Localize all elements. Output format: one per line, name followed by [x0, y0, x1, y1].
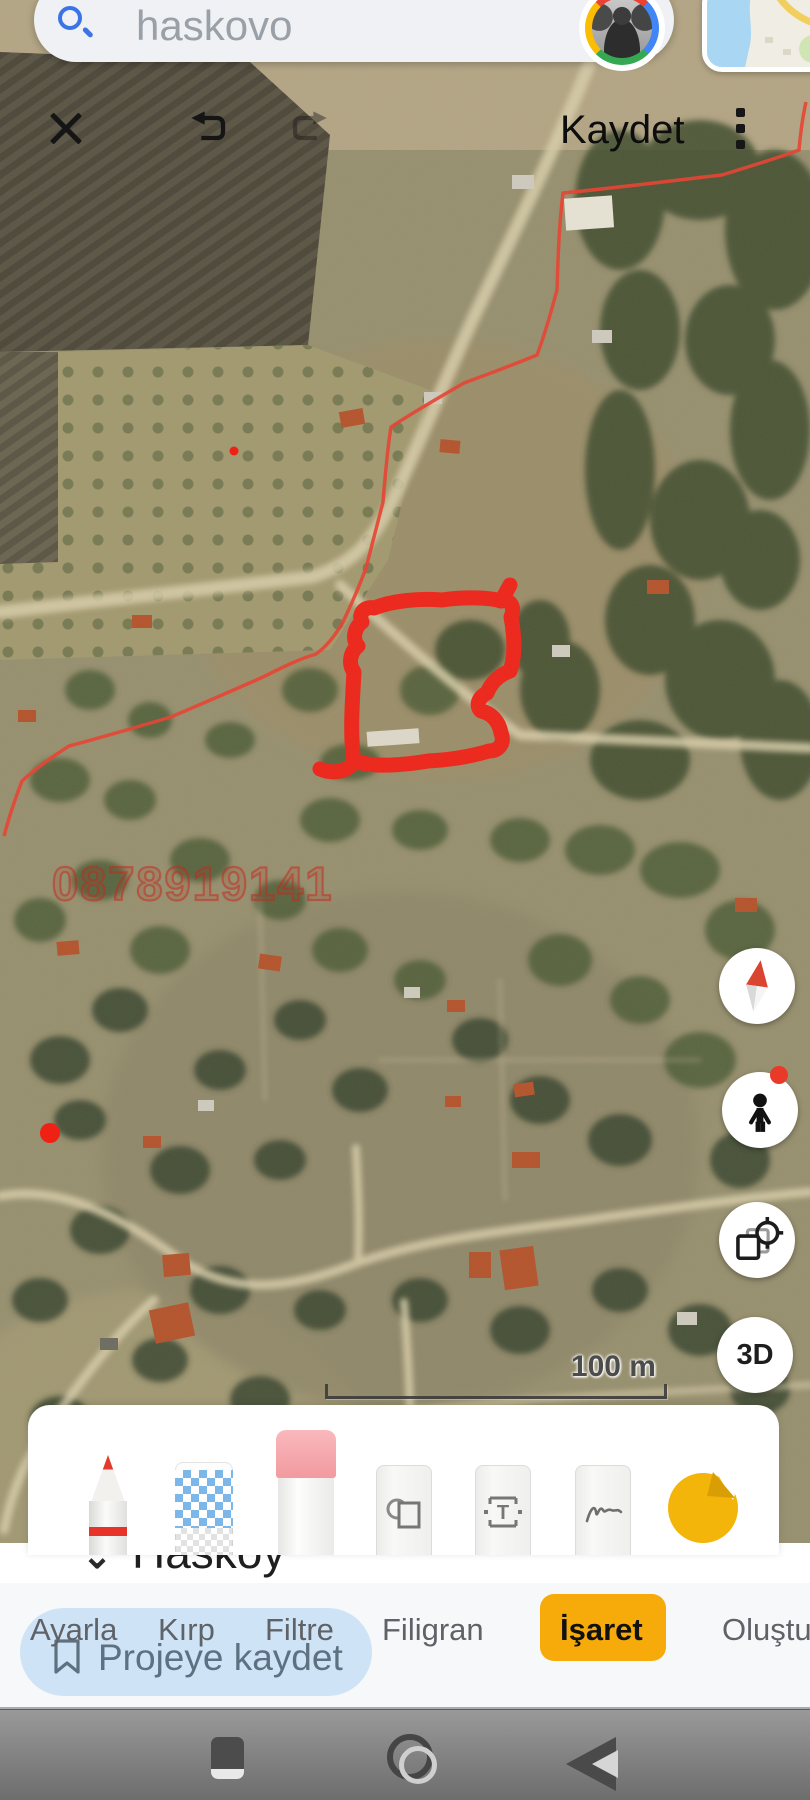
drawing-tools-palette: T — [28, 1405, 779, 1555]
home-icon-ring — [399, 1746, 437, 1784]
tab-kirp[interactable]: Kırp — [158, 1612, 215, 1648]
save-button[interactable]: Kaydet — [560, 108, 685, 153]
eraser-icon — [276, 1430, 336, 1478]
compass-button[interactable] — [719, 948, 795, 1024]
minimap-thumbnail[interactable] — [702, 0, 810, 72]
sticker-tool[interactable] — [667, 1466, 739, 1544]
text-icon: T — [482, 1492, 524, 1532]
signature-icon — [581, 1495, 625, 1529]
search-query[interactable]: haskovo — [136, 2, 292, 50]
mosaic-tool[interactable] — [175, 1462, 233, 1555]
pen-tip-icon — [85, 1455, 131, 1501]
eraser-tool[interactable] — [276, 1430, 336, 1555]
back-icon-highlight — [592, 1750, 618, 1778]
redo-icon — [290, 108, 330, 148]
rotate-view-icon — [730, 1215, 784, 1265]
undo-icon[interactable] — [188, 108, 228, 148]
scale-label: 100 m — [480, 1350, 656, 1384]
profile-photo — [592, 0, 652, 58]
text-tool[interactable]: T — [475, 1465, 531, 1555]
tab-isaret[interactable]: İşaret — [560, 1612, 643, 1648]
marker-pen-tool[interactable] — [85, 1455, 131, 1555]
tab-ayarla[interactable]: Ayarla — [30, 1612, 117, 1648]
tab-olustur[interactable]: Oluştur — [722, 1612, 810, 1648]
shapes-tool[interactable] — [376, 1465, 432, 1555]
3d-toggle-button[interactable]: 3D — [717, 1317, 793, 1393]
shapes-icon — [383, 1492, 425, 1532]
tab-filigran[interactable]: Filigran — [382, 1612, 484, 1648]
scale-bar — [325, 1384, 667, 1399]
search-icon — [58, 6, 92, 40]
3d-label: 3D — [736, 1339, 773, 1372]
sticker-icon — [667, 1466, 739, 1544]
svg-text:T: T — [497, 1502, 509, 1524]
street-view-button[interactable] — [722, 1072, 798, 1148]
pegman-icon — [734, 1082, 786, 1138]
compass-needle-icon — [732, 957, 782, 1015]
screenshot-editor-screen: 0878919141 haskovo Kaydet — [0, 0, 810, 1800]
close-icon[interactable] — [48, 110, 84, 146]
search-bar[interactable] — [34, 0, 674, 62]
android-navigation-bar — [0, 1709, 810, 1800]
mosaic-icon — [175, 1470, 233, 1528]
tab-filtre[interactable]: Filtre — [265, 1612, 334, 1648]
phone-watermark: 0878919141 — [52, 856, 333, 911]
rotate-view-button[interactable] — [719, 1202, 795, 1278]
signature-tool[interactable] — [575, 1465, 631, 1555]
street-view-notification-dot — [770, 1066, 788, 1084]
recents-icon[interactable] — [211, 1737, 244, 1779]
editor-tab-bar: Projeye kaydet Ayarla Kırp Filtre Filigr… — [0, 1583, 810, 1709]
overflow-menu-icon[interactable] — [736, 108, 745, 149]
